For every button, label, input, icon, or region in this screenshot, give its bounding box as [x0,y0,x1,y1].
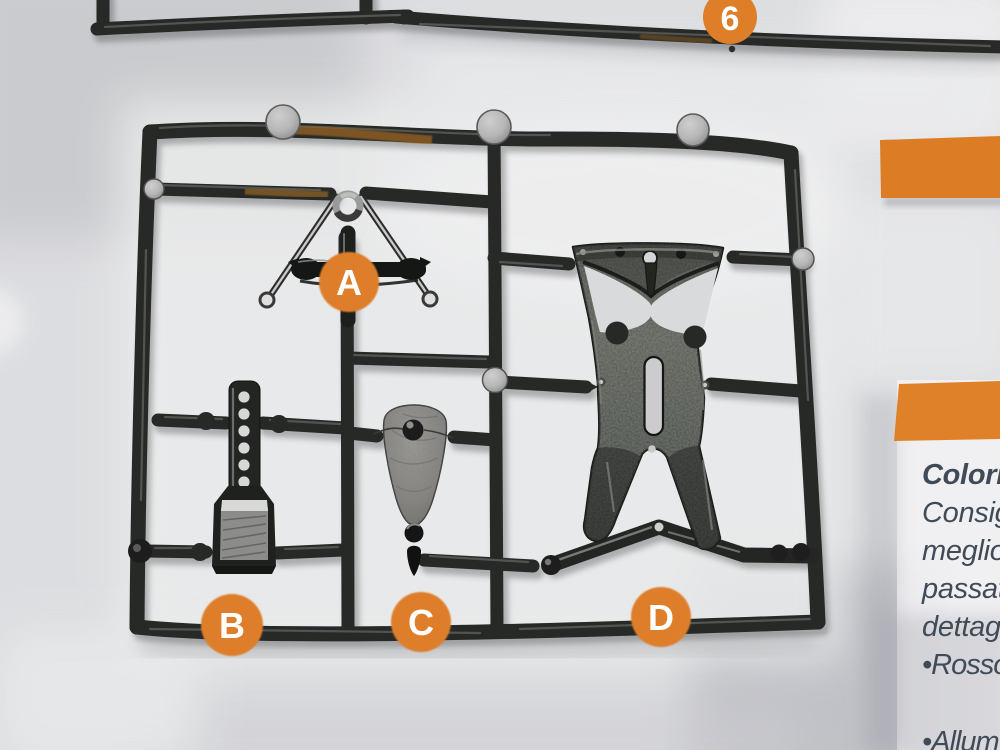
svg-text:C: C [408,602,434,643]
svg-text:B: B [219,605,245,646]
svg-text:6: 6 [721,0,740,38]
svg-text:D: D [648,597,674,638]
svg-text:A: A [336,262,362,303]
